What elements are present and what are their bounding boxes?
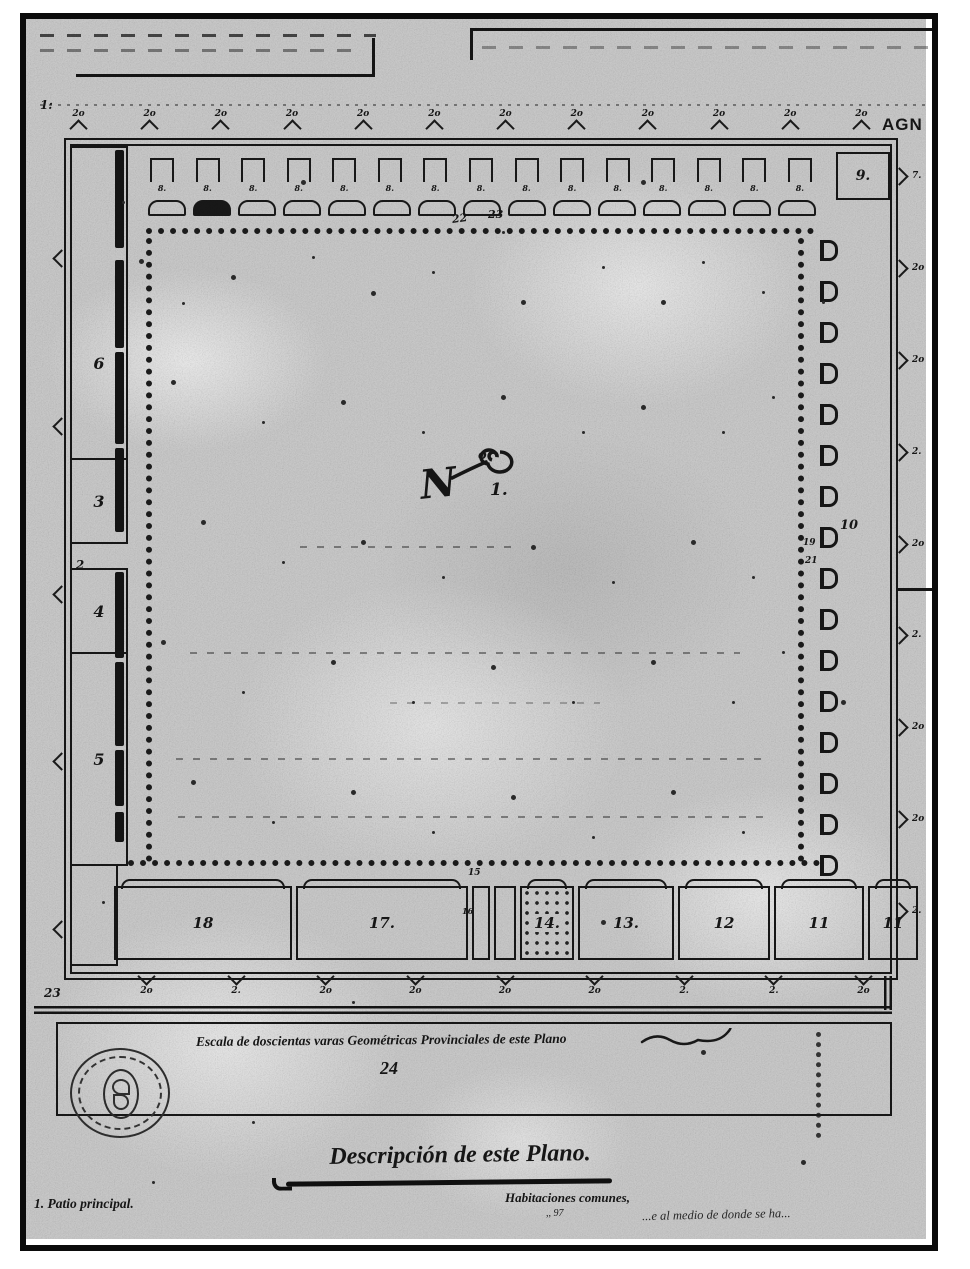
monogram-number: 1. (490, 480, 508, 500)
room-14: 14. (520, 886, 574, 960)
right-edge-line (896, 588, 936, 591)
niche-icon (788, 158, 812, 182)
monogram-ordinal: o (478, 448, 487, 463)
rule-line (34, 1006, 892, 1014)
wall-bar (115, 572, 124, 658)
bastion-label: 2o (144, 110, 156, 119)
wall-bar (115, 260, 124, 348)
room-12: 12 (678, 886, 770, 960)
gallery-niche-icon (820, 363, 838, 384)
room-label: 4 (93, 602, 104, 621)
trapezoid-icon (778, 200, 816, 216)
bastion-icon (425, 119, 443, 137)
niche-unit: 8. (150, 158, 174, 194)
room-label: 13. (613, 914, 639, 932)
top-fragment-corner-left (372, 38, 375, 77)
room-13: 13. (578, 886, 674, 960)
top-fragment-dash-2 (40, 49, 358, 52)
bastion-icon (283, 119, 301, 137)
bottom-bastion-unit: 2. (678, 970, 691, 1000)
bottom-bastion-row: 2o 2. 2o 2o 2o 2o 2. 2. 2o (140, 970, 870, 1000)
courtyard-dots-right (798, 238, 804, 862)
bastion-label: 2o (642, 110, 654, 119)
niche-unit: 8. (697, 158, 721, 194)
trapezoid-icon (238, 200, 276, 216)
courtyard-row-mark (300, 546, 520, 548)
top-fragment-dash-3 (482, 46, 930, 49)
gallery-niche-icon (820, 732, 838, 753)
trapezoid-row (148, 200, 816, 216)
room-11b: 11 (868, 886, 918, 960)
outside-corner-label: 23 (44, 986, 61, 1000)
room-2: 2 (70, 542, 124, 570)
bastion-icon (639, 119, 657, 137)
seal-emblem-icon (103, 1069, 139, 1119)
niche-unit: 8. (378, 158, 402, 194)
right-bastion-unit: 2o (893, 721, 929, 734)
bastion-icon (52, 920, 70, 938)
bastion-label: 2o (140, 987, 152, 996)
bastion-label: 2o (320, 987, 332, 996)
niche-unit: 8. (651, 158, 675, 194)
niche-label: 8. (522, 184, 530, 192)
bastion-label: 2o (215, 110, 227, 119)
bastion-unit: 2o (357, 110, 370, 140)
courtyard-dots-top (146, 228, 814, 234)
bastion-unit: 2o (214, 110, 227, 140)
bastion-icon (137, 967, 155, 985)
wall-bar (115, 150, 124, 248)
niche-unit: 8. (332, 158, 356, 194)
courtyard-row-mark (390, 702, 600, 704)
corner-mark: 1: (40, 98, 53, 112)
bastion-icon (890, 259, 908, 277)
niche-label: 8. (659, 184, 667, 192)
niche-unit: 8. (515, 158, 539, 194)
niche-label: 8. (158, 184, 166, 192)
room-label: 11 (883, 914, 904, 932)
wall-bar (115, 352, 124, 444)
courtyard-row-mark (176, 758, 762, 760)
right-bastion-unit: 2o (893, 262, 929, 275)
niche-icon (196, 158, 220, 182)
niche-label: 8. (249, 184, 257, 192)
bottom-bastion-unit: 2. (230, 970, 243, 1000)
room-18: 18 (114, 886, 292, 960)
courtyard-row-mark (190, 652, 740, 654)
bastion-icon (406, 967, 424, 985)
gallery-niche-icon (820, 527, 838, 548)
gallery-niche-icon (820, 240, 838, 261)
bastion-icon (69, 119, 87, 137)
gallery-column (820, 240, 838, 876)
bastion-label: 2o (912, 356, 924, 365)
bastion-icon (140, 119, 158, 137)
trapezoid-icon (373, 200, 411, 216)
right-bastion-unit: 2. (893, 446, 929, 459)
room-17: 17. (296, 886, 468, 960)
bastion-icon (496, 967, 514, 985)
gallery-niche-icon (820, 445, 838, 466)
scale-flourish-icon (640, 1028, 736, 1050)
room-label: 11 (809, 914, 830, 932)
bottom-bastion-unit: 2o (588, 970, 601, 1000)
speckle-noise (0, 0, 3, 3)
bastion-label: 2o (912, 723, 924, 732)
bastion-unit: 2o (855, 110, 868, 140)
bastion-label: 2o (912, 540, 924, 549)
bottom-bastion-unit: 2o (857, 970, 870, 1000)
niche-icon (241, 158, 265, 182)
dot-row-label-b: 23 (488, 208, 503, 221)
bastion-label: 2. (769, 987, 778, 996)
bastion-unit: 2o (72, 110, 85, 140)
bastion-icon (317, 967, 335, 985)
bottom-rooms-row: 18 17. 14. 13. 12 11 11 (114, 886, 892, 960)
trapezoid-icon (148, 200, 186, 216)
wall-bar (115, 750, 124, 806)
niche-icon (606, 158, 630, 182)
niche-label: 8. (431, 184, 439, 192)
niche-icon (332, 158, 356, 182)
bastion-label: 2o (409, 987, 421, 996)
niche-icon (287, 158, 311, 182)
niche-unit: 8. (241, 158, 265, 194)
bastion-icon (354, 119, 372, 137)
bottom-bastion-unit: 2o (319, 970, 332, 1000)
gallery-niche-icon (820, 855, 838, 876)
bastion-unit: 2o (499, 110, 512, 140)
bastion-unit: 2o (570, 110, 583, 140)
courtyard-monogram: N o 1. (420, 446, 560, 516)
bottom-bastion-unit: 2o (499, 970, 512, 1000)
niche-row: 8. 8. 8. 8. 8. 8. 8. 8. 8. 8. (150, 158, 812, 194)
gallery-label: 10 (840, 518, 858, 533)
bastion-label: 2. (912, 448, 921, 457)
bastion-label: 2. (231, 987, 240, 996)
niche-unit: 8. (606, 158, 630, 194)
niche-label: 8. (750, 184, 758, 192)
bastion-icon (52, 417, 70, 435)
trapezoid-icon (598, 200, 636, 216)
bastion-icon (890, 627, 908, 645)
archive-watermark: AGN (882, 115, 923, 135)
gallery-niche-icon (820, 691, 838, 712)
lower-dotted-line (816, 1032, 821, 1138)
niche-unit: 8. (423, 158, 447, 194)
corridor-15 (494, 886, 516, 960)
gallery-niche-icon (820, 281, 838, 302)
room-9: 9. (836, 152, 890, 200)
bastion-label: 2o (784, 110, 796, 119)
room-label: 18 (193, 914, 214, 932)
bastion-icon (781, 119, 799, 137)
room-label: 3 (93, 492, 104, 511)
gallery-niche-icon (820, 773, 838, 794)
bastion-label: 2o (571, 110, 583, 119)
corridor-16 (472, 886, 490, 960)
top-fragment-dash-1 (40, 34, 376, 37)
niche-label: 8. (796, 184, 804, 192)
wall-bar (115, 662, 124, 746)
top-bastion-row: 2o 2o 2o 2o 2o 2o 2o 2o 2o 2o (72, 110, 868, 140)
courtyard-dots-left (146, 238, 152, 862)
gallery-label-a: 19 (803, 538, 816, 548)
niche-unit: 8. (287, 158, 311, 194)
bastion-label: 2o (499, 987, 511, 996)
dot-row-label-a: 22 (451, 211, 468, 226)
gallery-niche-icon (820, 486, 838, 507)
niche-label: 8. (568, 184, 576, 192)
niche-icon (378, 158, 402, 182)
bastion-label: 2o (857, 987, 869, 996)
niche-label: 8. (340, 184, 348, 192)
trapezoid-icon (553, 200, 591, 216)
right-bastion-unit: 2o (893, 538, 929, 551)
niche-icon (697, 158, 721, 182)
left-bastion-column (54, 252, 68, 936)
trapezoid-icon (643, 200, 681, 216)
gallery-niche-icon (820, 650, 838, 671)
niche-label: 8. (613, 184, 621, 192)
bastion-label: 2o (428, 110, 440, 119)
niche-icon (469, 158, 493, 182)
bastion-label: 2o (912, 264, 924, 273)
right-wall-stub (884, 976, 892, 1010)
bastion-icon (890, 351, 908, 369)
corner-room (70, 864, 118, 966)
bastion-icon (854, 967, 872, 985)
bastion-unit: 2o (143, 110, 156, 140)
right-bastion-unit: 2o (893, 354, 929, 367)
scale-number: 24 (380, 1058, 398, 1079)
niche-icon (560, 158, 584, 182)
right-bastion-unit: 7. (893, 170, 929, 183)
gallery-niche-icon (820, 568, 838, 589)
bastion-icon (765, 967, 783, 985)
bottom-bastion-unit: 2o (140, 970, 153, 1000)
niche-label: 8. (477, 184, 485, 192)
bastion-icon (212, 119, 230, 137)
niche-label: 8. (705, 184, 713, 192)
bastion-label: 2o (286, 110, 298, 119)
bastion-unit: 2o (713, 110, 726, 140)
gallery-niche-icon (820, 322, 838, 343)
top-fragment-line-left (76, 74, 374, 77)
corridor-label-16: 16 (462, 906, 473, 916)
bastion-icon (890, 535, 908, 553)
bastion-label: 7. (912, 172, 921, 181)
bastion-unit: 2o (641, 110, 654, 140)
bastion-icon (890, 810, 908, 828)
wall-bar (115, 812, 124, 842)
right-bastion-unit: 2. (893, 629, 929, 642)
trapezoid-icon (508, 200, 546, 216)
bastion-label: 2o (72, 110, 84, 119)
room-label: 12 (714, 914, 735, 932)
bastion-icon (890, 443, 908, 461)
room-label: 5 (93, 750, 104, 769)
niche-unit: 8. (742, 158, 766, 194)
gallery-label-b: 21 (805, 556, 818, 566)
top-faint-dotline (40, 104, 930, 106)
bastion-label: 2o (357, 110, 369, 119)
room-label: 9. (856, 168, 871, 184)
scanned-plan-page: 1: AGN 2o 2o 2o 2o 2o 2o 2o 2o 2o (0, 0, 970, 1269)
right-bastion-column: 7. 2o 2o 2. 2o 2. 2o 2o 2. (893, 170, 929, 918)
bastion-label: 2o (588, 987, 600, 996)
bastion-icon (890, 719, 908, 737)
bottom-bastion-unit: 2o (409, 970, 422, 1000)
niche-unit: 8. (560, 158, 584, 194)
niche-icon (150, 158, 174, 182)
niche-label: 8. (295, 184, 303, 192)
bastion-label: 2. (912, 631, 921, 640)
bastion-label: 2o (912, 815, 924, 824)
courtyard-row-mark (178, 816, 768, 818)
inner-wall (70, 144, 892, 974)
bastion-icon (496, 119, 514, 137)
trapezoid-icon (193, 200, 231, 216)
courtyard-dots-bottom (128, 860, 820, 866)
gallery-niche-icon (820, 404, 838, 425)
gap-label-15: 15 (468, 868, 481, 878)
trapezoid-icon (688, 200, 726, 216)
room-11a: 11 (774, 886, 864, 960)
wall-bar (115, 448, 124, 532)
top-fragment-corner-right (470, 28, 473, 60)
bastion-label: 2o (855, 110, 867, 119)
caption-center: Habitaciones comunes, (505, 1190, 630, 1206)
bottom-bastion-unit: 2. (767, 970, 780, 1000)
bastion-icon (52, 249, 70, 267)
niche-unit: 8. (196, 158, 220, 194)
gallery-niche-icon (820, 814, 838, 835)
caption-center-sub: ,, 97 (546, 1208, 564, 1219)
niche-icon (742, 158, 766, 182)
bastion-icon (852, 119, 870, 137)
niche-label: 8. (203, 184, 211, 192)
bastion-unit: 2o (784, 110, 797, 140)
niche-label: 8. (386, 184, 394, 192)
bastion-label: 2. (680, 987, 689, 996)
room-label: 6 (93, 354, 104, 373)
bastion-icon (710, 119, 728, 137)
trapezoid-icon (733, 200, 771, 216)
top-fragment-line-right (470, 28, 932, 31)
right-bastion-unit: 2o (893, 813, 929, 826)
trapezoid-icon (283, 200, 321, 216)
bastion-icon (227, 967, 245, 985)
room-label: 17. (369, 914, 395, 932)
trapezoid-icon (328, 200, 366, 216)
bastion-unit: 2o (286, 110, 299, 140)
niche-icon (651, 158, 675, 182)
bastion-icon (52, 753, 70, 771)
bastion-label: 2o (499, 110, 511, 119)
bastion-icon (890, 167, 908, 185)
niche-unit: 8. (469, 158, 493, 194)
caption-left: 1. Patio principal. (34, 1196, 134, 1212)
niche-icon (515, 158, 539, 182)
bastion-label: 2o (713, 110, 725, 119)
gallery-niche-icon (820, 609, 838, 630)
bastion-icon (585, 967, 603, 985)
archive-seal (70, 1048, 170, 1138)
niche-unit: 8. (788, 158, 812, 194)
room-label: 14. (532, 914, 562, 932)
niche-icon (423, 158, 447, 182)
bastion-icon (52, 585, 70, 603)
bastion-icon (675, 967, 693, 985)
bastion-unit: 2o (428, 110, 441, 140)
bastion-icon (568, 119, 586, 137)
